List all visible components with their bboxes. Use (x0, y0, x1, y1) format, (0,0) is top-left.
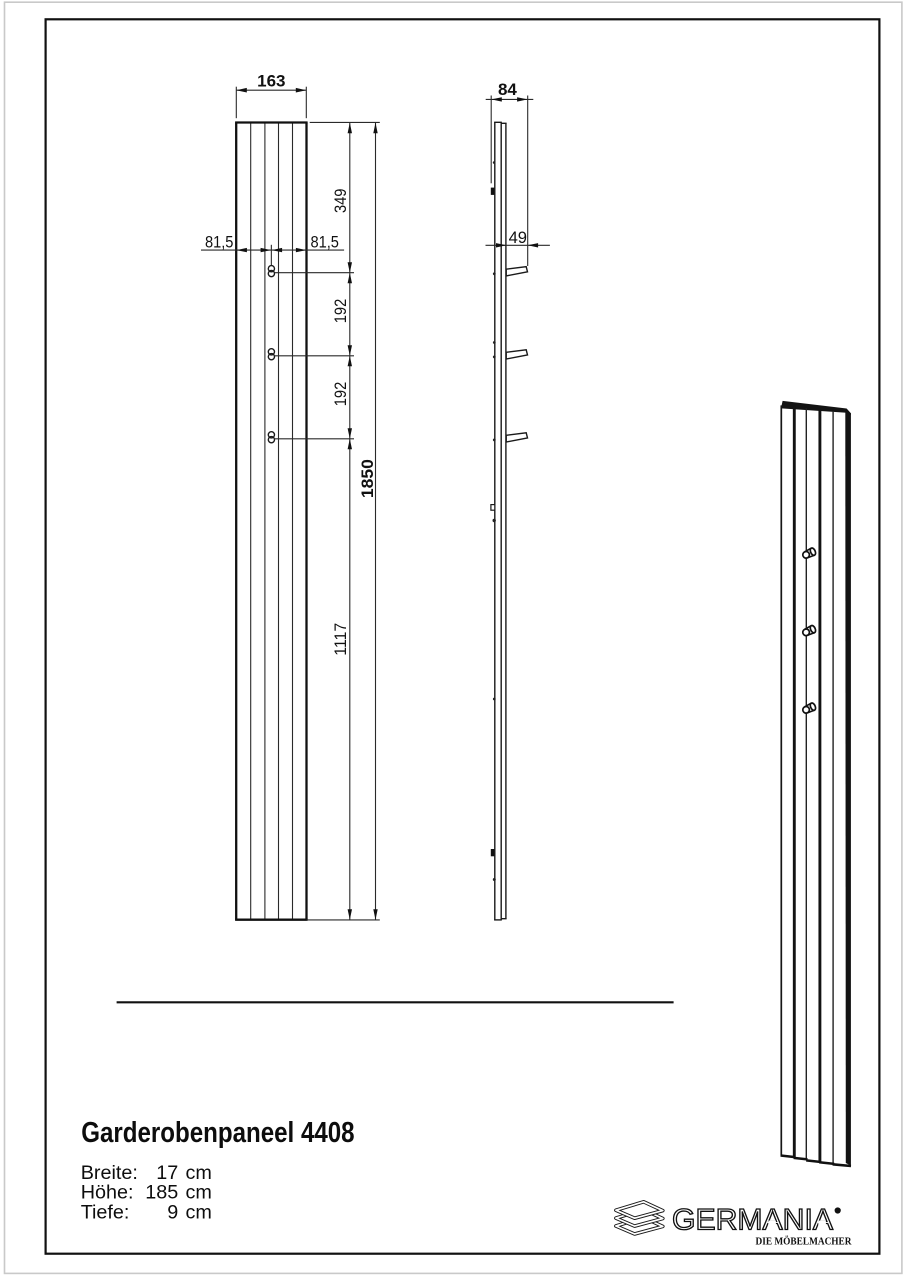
svg-text:84: 84 (498, 80, 517, 99)
svg-text:DIE MÖBELMACHER: DIE MÖBELMACHER (756, 1235, 852, 1248)
svg-text:GERMANIA: GERMANIA (672, 1204, 833, 1237)
svg-text:cm: cm (186, 1162, 212, 1184)
svg-text:1117: 1117 (331, 623, 350, 656)
svg-text:192: 192 (331, 299, 350, 324)
svg-text:81,5: 81,5 (205, 232, 234, 251)
svg-text:Tiefe:: Tiefe: (81, 1201, 130, 1223)
svg-text:Garderobenpaneel 4408: Garderobenpaneel 4408 (81, 1117, 354, 1149)
svg-text:Breite:: Breite: (81, 1162, 138, 1184)
svg-text:349: 349 (331, 189, 350, 214)
svg-text:81,5: 81,5 (310, 232, 339, 251)
svg-text:192: 192 (331, 382, 350, 407)
svg-text:49: 49 (509, 228, 527, 247)
svg-text:163: 163 (257, 72, 285, 91)
svg-text:9: 9 (167, 1201, 178, 1223)
svg-text:cm: cm (186, 1201, 212, 1223)
svg-text:1850: 1850 (358, 459, 377, 498)
svg-text:17: 17 (156, 1162, 178, 1184)
